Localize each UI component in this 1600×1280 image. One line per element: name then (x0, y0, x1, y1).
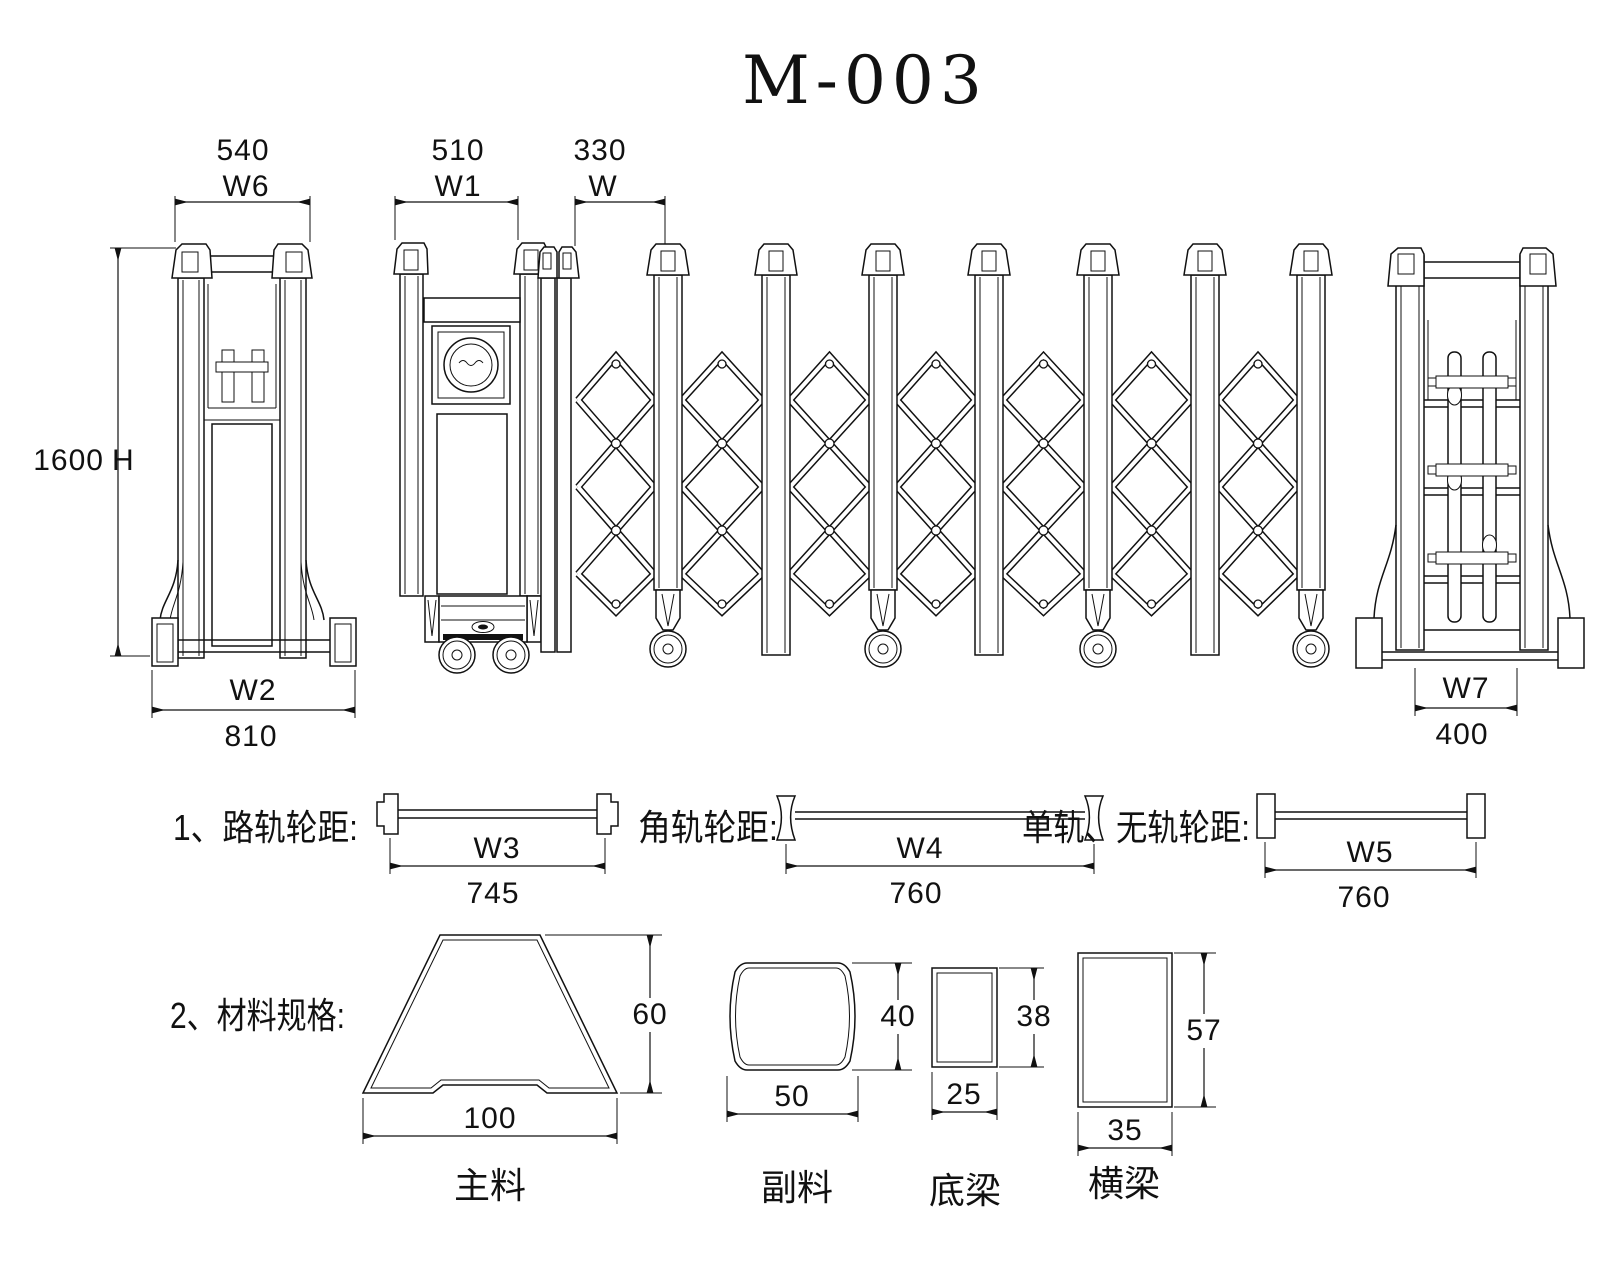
lattice-pivot (932, 526, 941, 535)
lattice-pivot (932, 439, 941, 448)
lattice-pivot (826, 600, 834, 608)
top-crossbar (1424, 262, 1520, 278)
head-column (520, 274, 543, 596)
lattice-pivot (1040, 600, 1048, 608)
right-view-post (1520, 256, 1548, 650)
lattice-pivot (1147, 439, 1156, 448)
dim-810-value: 810 (224, 720, 277, 753)
post-cap (862, 244, 904, 275)
accordion-post (654, 275, 682, 590)
dim-base-400: W7 400 (1415, 668, 1517, 751)
scissor-bars-end-on (1428, 352, 1516, 622)
lattice-pivot (718, 360, 726, 368)
lattice-pivot (1040, 360, 1048, 368)
wheelbase-label-angle-rail: 角轨轮距: (638, 807, 778, 848)
post-panel (212, 424, 272, 646)
dim-w4-label: W4 (897, 832, 944, 865)
right-end-view: W7 400 (1356, 248, 1584, 751)
lattice-pivot (826, 360, 834, 368)
profile-bottom-beam: 38 25 底梁 (929, 968, 1054, 1211)
axle-shaft (1275, 812, 1467, 819)
base-foot (1558, 618, 1584, 668)
accordion-post (975, 275, 1003, 655)
lattice-pivot (1254, 526, 1263, 535)
gate-head-post (394, 243, 579, 673)
dim-38-value: 38 (1016, 1000, 1051, 1033)
head-chassis (425, 596, 541, 642)
folded-post-pair (538, 247, 579, 652)
rail-wheel (597, 794, 618, 834)
post-cap (1077, 244, 1119, 275)
road-rail-axle: W3 745 (377, 794, 618, 910)
accordion-post (1297, 275, 1325, 590)
dim-height-1600: 1600 H (33, 248, 176, 656)
frame-crossbars (1424, 400, 1520, 630)
post-cap (1290, 244, 1332, 275)
dim-330-w: 330 W (573, 134, 665, 246)
top-dimensions: 540 W6 510 W1 330 W (175, 134, 665, 246)
dim-35-value: 35 (1107, 1114, 1142, 1147)
wheelbase-label-trackless: 单轨、无轨轮距: (1022, 807, 1250, 848)
lattice-pivot (825, 526, 834, 535)
right-view-post (1396, 256, 1424, 650)
lattice-pivot (718, 526, 727, 535)
head-wheel (439, 637, 475, 673)
dim-57-value: 57 (1186, 1014, 1221, 1047)
profile-label-cross-beam: 横梁 (1088, 1163, 1160, 1204)
dim-760-value: 760 (889, 877, 942, 910)
dim-760b-value: 760 (1337, 881, 1390, 914)
dim-1600-value: 1600 (33, 444, 104, 477)
brand-badge (432, 326, 510, 404)
base-crossbar (1382, 652, 1558, 660)
dim-510-value: 510 (431, 134, 484, 167)
lattice-pivot (612, 526, 621, 535)
lattice-pivot (932, 600, 940, 608)
dim-540-w6: 540 W6 (175, 134, 310, 242)
post-cap (1184, 244, 1226, 275)
dim-100-value: 100 (463, 1102, 516, 1135)
panel-header (424, 298, 520, 322)
lattice-pivot (612, 439, 621, 448)
post-wheel (865, 631, 901, 667)
dim-w1-label: W1 (435, 170, 482, 203)
dim-40-value: 40 (880, 1000, 915, 1033)
title-block: M-003 (742, 42, 988, 119)
lattice-pivot (1039, 526, 1048, 535)
base-foot (152, 618, 178, 666)
rail-wheel (377, 794, 398, 834)
dim-540-value: 540 (216, 134, 269, 167)
cad-drawing: M-003 540 W6 510 W1 330 W (0, 0, 1600, 1280)
dim-w7-label: W7 (1443, 672, 1490, 705)
lattice-pivot (612, 600, 620, 608)
profile-label-main: 主料 (454, 1165, 526, 1206)
axle-shaft (398, 810, 597, 818)
lattice-pivot (932, 360, 940, 368)
accordion-post (1191, 275, 1219, 655)
post-cap (272, 244, 312, 278)
post-wheel (1293, 631, 1329, 667)
dim-60-value: 60 (632, 998, 667, 1031)
post-cap (172, 244, 212, 278)
dim-400-value: 400 (1435, 718, 1488, 751)
post-cap (647, 244, 689, 275)
chassis-emblem (472, 622, 494, 633)
wheelbase-label-road-rail: 1、路轨轮距: (173, 807, 358, 848)
head-column (400, 274, 423, 596)
lattice-pivot (1254, 439, 1263, 448)
lattice-pivot (718, 600, 726, 608)
dim-510-w1: 510 W1 (395, 134, 518, 240)
profile-cross-beam: 57 35 横梁 (1078, 953, 1224, 1204)
scissor-lattice (578, 356, 1297, 612)
drive-mechanism (216, 350, 268, 402)
head-panel (437, 414, 507, 594)
drawing-sheet: M-003 540 W6 510 W1 330 W (0, 0, 1600, 1280)
dim-w-label: W (588, 170, 617, 203)
left-end-view: 1600 H W2 810 (33, 244, 356, 753)
post-wheel (1080, 631, 1116, 667)
accordion-post (1084, 275, 1112, 590)
dim-745-value: 745 (466, 877, 519, 910)
top-crossbar (204, 256, 280, 272)
accordion-posts (647, 244, 1332, 667)
materials-label: 2、材料规格: (170, 995, 345, 1036)
profile-label-secondary: 副料 (761, 1167, 833, 1208)
base-foot (1356, 618, 1382, 668)
profile-secondary-rail: 40 50 副料 (727, 963, 918, 1208)
accordion-post (869, 275, 897, 590)
lattice-pivot (612, 360, 620, 368)
post-cap (968, 244, 1010, 275)
accordion-post (762, 275, 790, 655)
materials-row: 2、材料规格: 60 100 主料 40 50 副料 (170, 935, 1224, 1211)
post-cap (394, 243, 428, 274)
base-foot (330, 618, 356, 666)
flat-wheel (1467, 794, 1485, 838)
dim-w6-label: W6 (223, 170, 270, 203)
dim-base-810: W2 810 (152, 670, 355, 753)
lattice-pivot (1148, 600, 1156, 608)
dim-w3-label: W3 (474, 832, 521, 865)
lattice-pivot (1148, 360, 1156, 368)
dim-w2-label: W2 (230, 674, 277, 707)
drawing-title: M-003 (742, 42, 988, 119)
profile-main-rail: 60 100 主料 (363, 935, 670, 1206)
post-cap (755, 244, 797, 275)
dim-50-value: 50 (774, 1080, 809, 1113)
dim-w5-label: W5 (1347, 836, 1394, 869)
dim-25-value: 25 (946, 1078, 981, 1111)
head-wheel (493, 637, 529, 673)
lattice-pivot (718, 439, 727, 448)
groove-wheel (777, 796, 795, 840)
lattice-pivot (1147, 526, 1156, 535)
dim-h-label: H (112, 444, 135, 477)
lattice-pivot (1039, 439, 1048, 448)
profile-label-bottom-beam: 底梁 (929, 1170, 1001, 1211)
left-view-post (178, 278, 204, 658)
flat-wheel (1257, 794, 1275, 838)
lattice-pivot (1254, 600, 1262, 608)
lattice-pivot (1254, 360, 1262, 368)
trackless-axle: W5 760 (1257, 794, 1485, 914)
left-view-post (280, 278, 306, 658)
lattice-pivot (825, 439, 834, 448)
post-wheel (650, 631, 686, 667)
wheelbase-row: 1、路轨轮距: W3 745 角轨轮距: W4 760 单轨、无轨轮距: (173, 794, 1485, 914)
dim-330-value: 330 (573, 134, 626, 167)
